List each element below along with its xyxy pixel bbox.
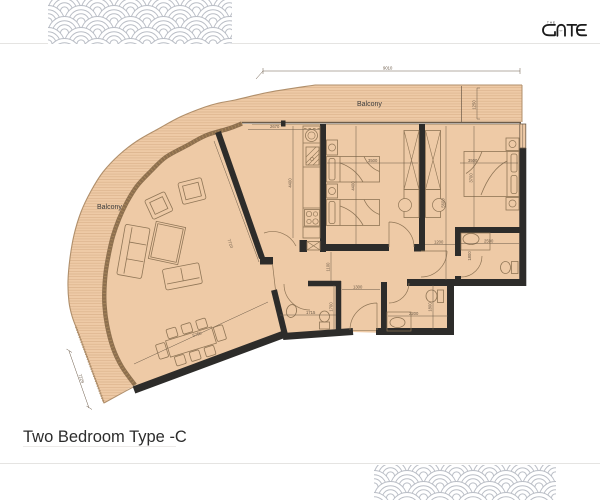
svg-text:1200: 1200 [434, 240, 444, 245]
svg-text:1715: 1715 [306, 310, 316, 315]
svg-text:THE: THE [547, 21, 556, 25]
svg-text:2200: 2200 [409, 311, 419, 316]
svg-text:1700: 1700 [329, 302, 334, 312]
svg-text:9010: 9010 [383, 66, 393, 71]
svg-text:1800: 1800 [467, 251, 472, 261]
svg-text:1300: 1300 [353, 285, 363, 290]
svg-text:1250: 1250 [472, 100, 477, 110]
svg-text:5600: 5600 [441, 198, 446, 208]
svg-text:Balcony: Balcony [357, 101, 382, 108]
svg-text:2590: 2590 [484, 239, 494, 244]
svg-text:Balcony: Balcony [97, 204, 122, 211]
svg-text:1800: 1800 [428, 302, 433, 312]
svg-text:3500: 3500 [468, 158, 478, 163]
svg-text:Two Bedroom Type -C: Two Bedroom Type -C [23, 428, 187, 446]
svg-text:1100: 1100 [326, 262, 331, 272]
svg-text:3500: 3500 [368, 158, 378, 163]
svg-text:3700: 3700 [469, 173, 474, 183]
svg-text:2670: 2670 [270, 124, 280, 129]
svg-text:4400: 4400 [288, 178, 293, 188]
svg-text:4400: 4400 [351, 181, 356, 191]
